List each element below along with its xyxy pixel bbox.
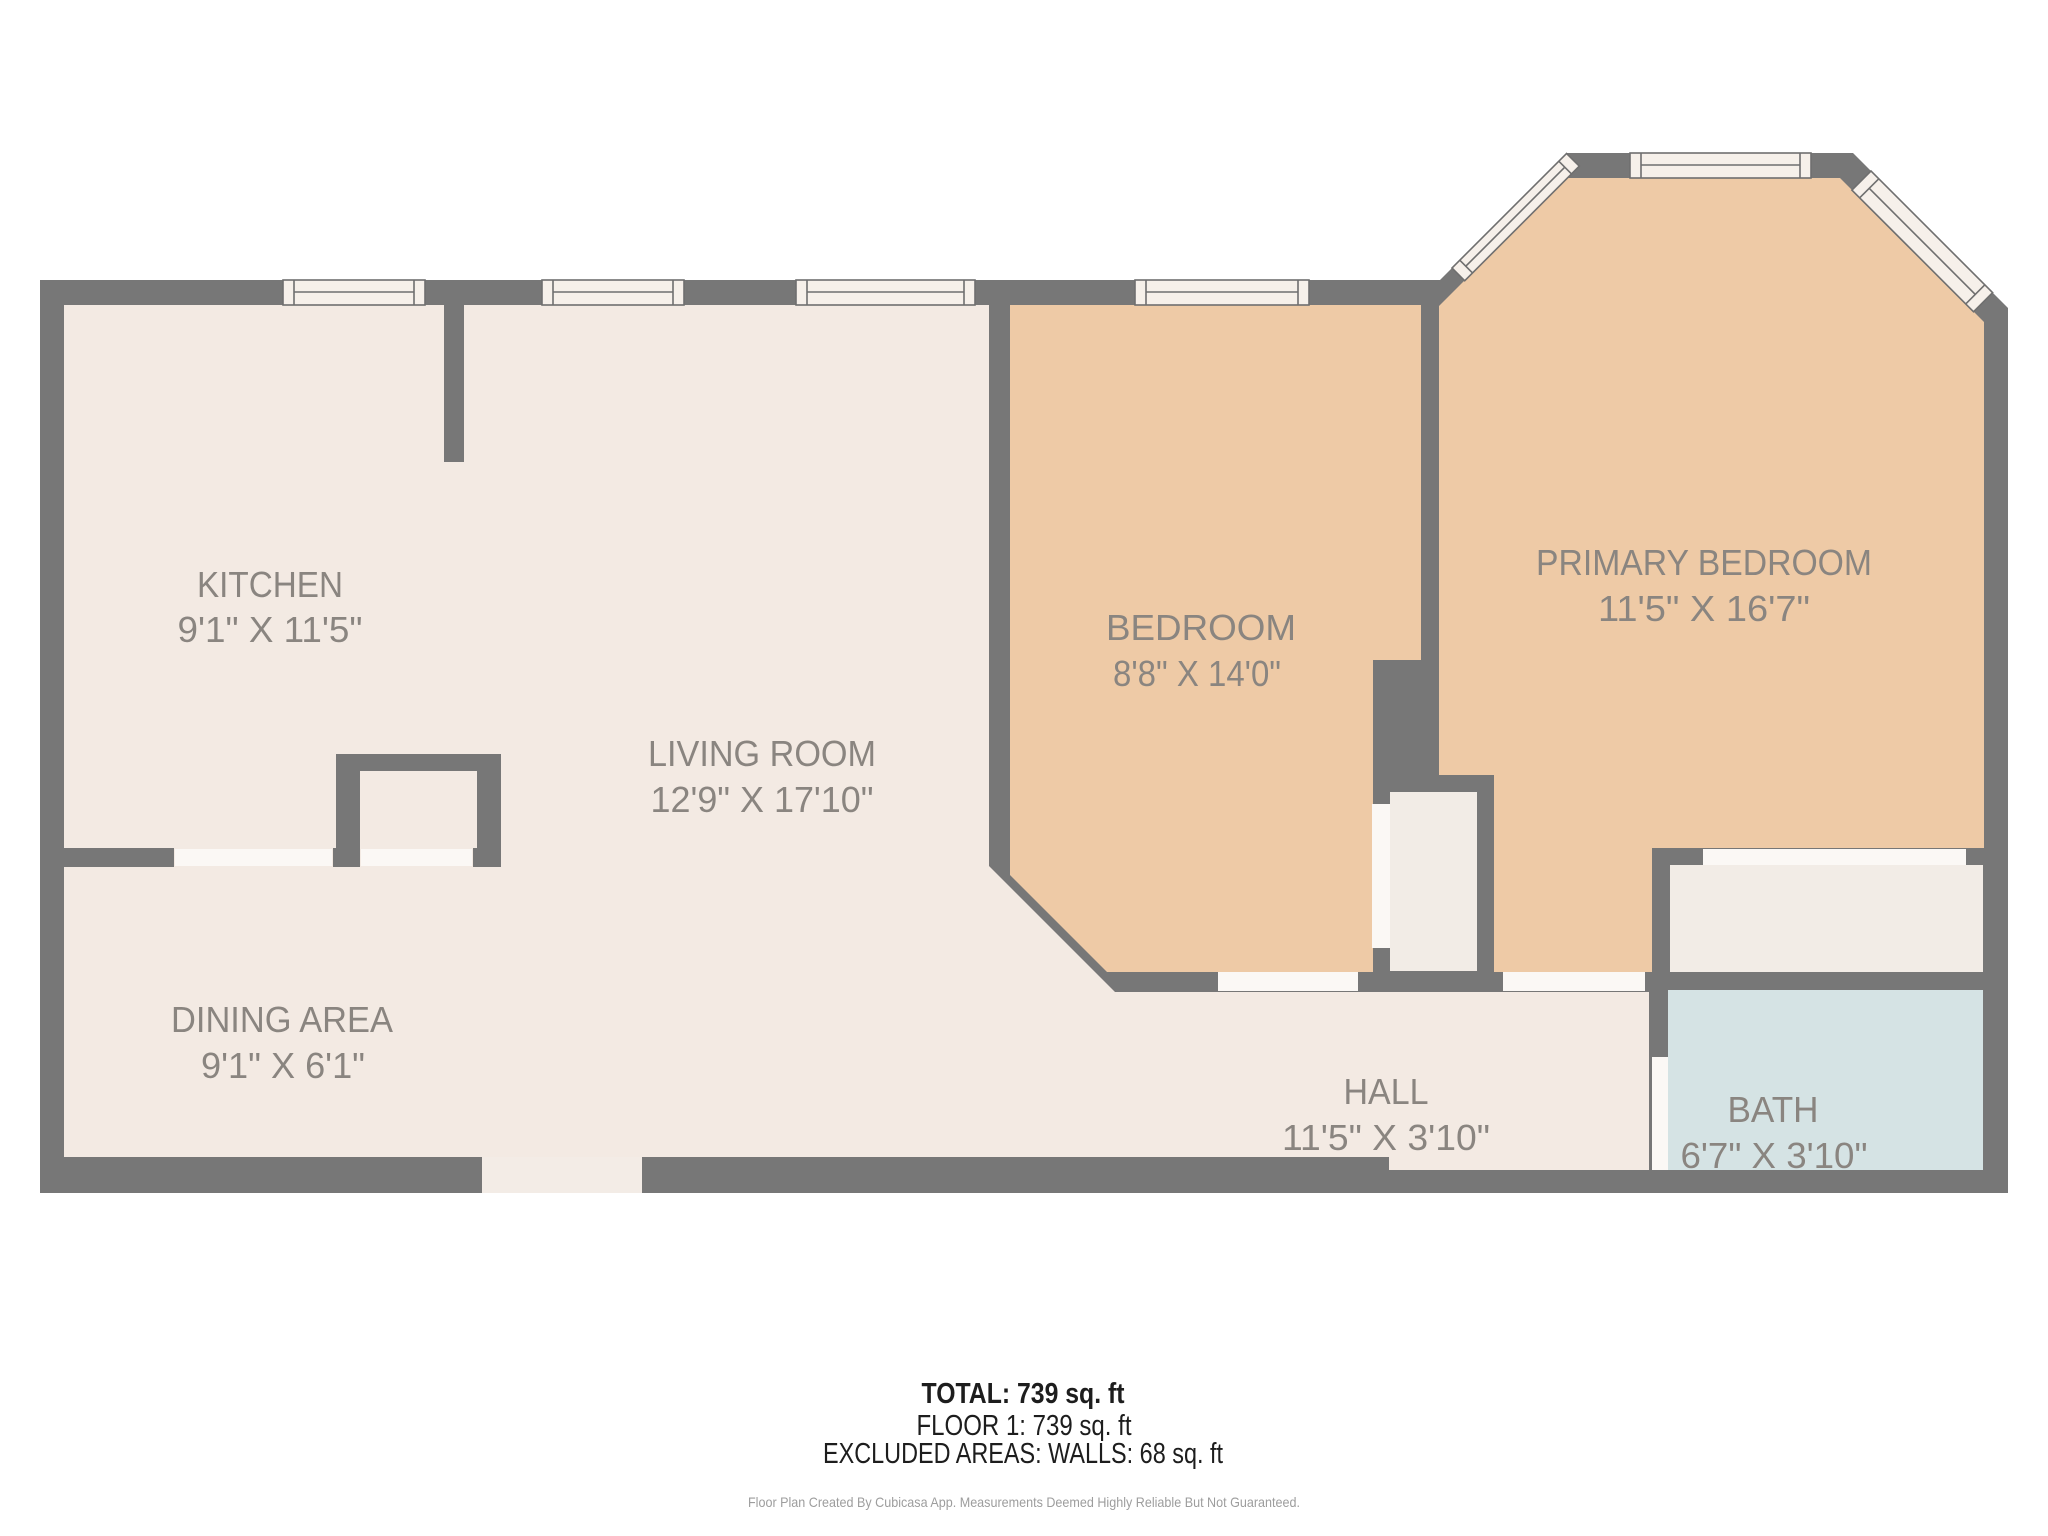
svg-text:9'1" X 6'1": 9'1" X 6'1" <box>201 1045 365 1086</box>
svg-text:HALL: HALL <box>1344 1071 1429 1112</box>
svg-text:6'7" X 3'10": 6'7" X 3'10" <box>1681 1135 1868 1176</box>
svg-text:TOTAL: 739 sq. ft: TOTAL: 739 sq. ft <box>922 1378 1125 1410</box>
svg-text:EXCLUDED AREAS: WALLS: 68 sq.: EXCLUDED AREAS: WALLS: 68 sq. ft <box>823 1438 1223 1470</box>
svg-text:BATH: BATH <box>1728 1089 1819 1130</box>
svg-text:9'1" X 11'5": 9'1" X 11'5" <box>178 609 363 650</box>
svg-text:PRIMARY BEDROOM: PRIMARY BEDROOM <box>1536 542 1872 583</box>
svg-text:LIVING ROOM: LIVING ROOM <box>648 733 876 774</box>
svg-text:8'8" X 14'0": 8'8" X 14'0" <box>1113 653 1281 694</box>
svg-text:BEDROOM: BEDROOM <box>1106 607 1296 648</box>
svg-text:11'5" X 16'7": 11'5" X 16'7" <box>1598 588 1810 629</box>
svg-text:12'9" X 17'10": 12'9" X 17'10" <box>651 779 874 820</box>
svg-text:Floor Plan Created By Cubicasa: Floor Plan Created By Cubicasa App. Meas… <box>748 1494 1300 1510</box>
svg-text:11'5" X 3'10": 11'5" X 3'10" <box>1282 1117 1490 1158</box>
svg-text:DINING AREA: DINING AREA <box>171 999 393 1040</box>
svg-text:KITCHEN: KITCHEN <box>197 564 343 605</box>
